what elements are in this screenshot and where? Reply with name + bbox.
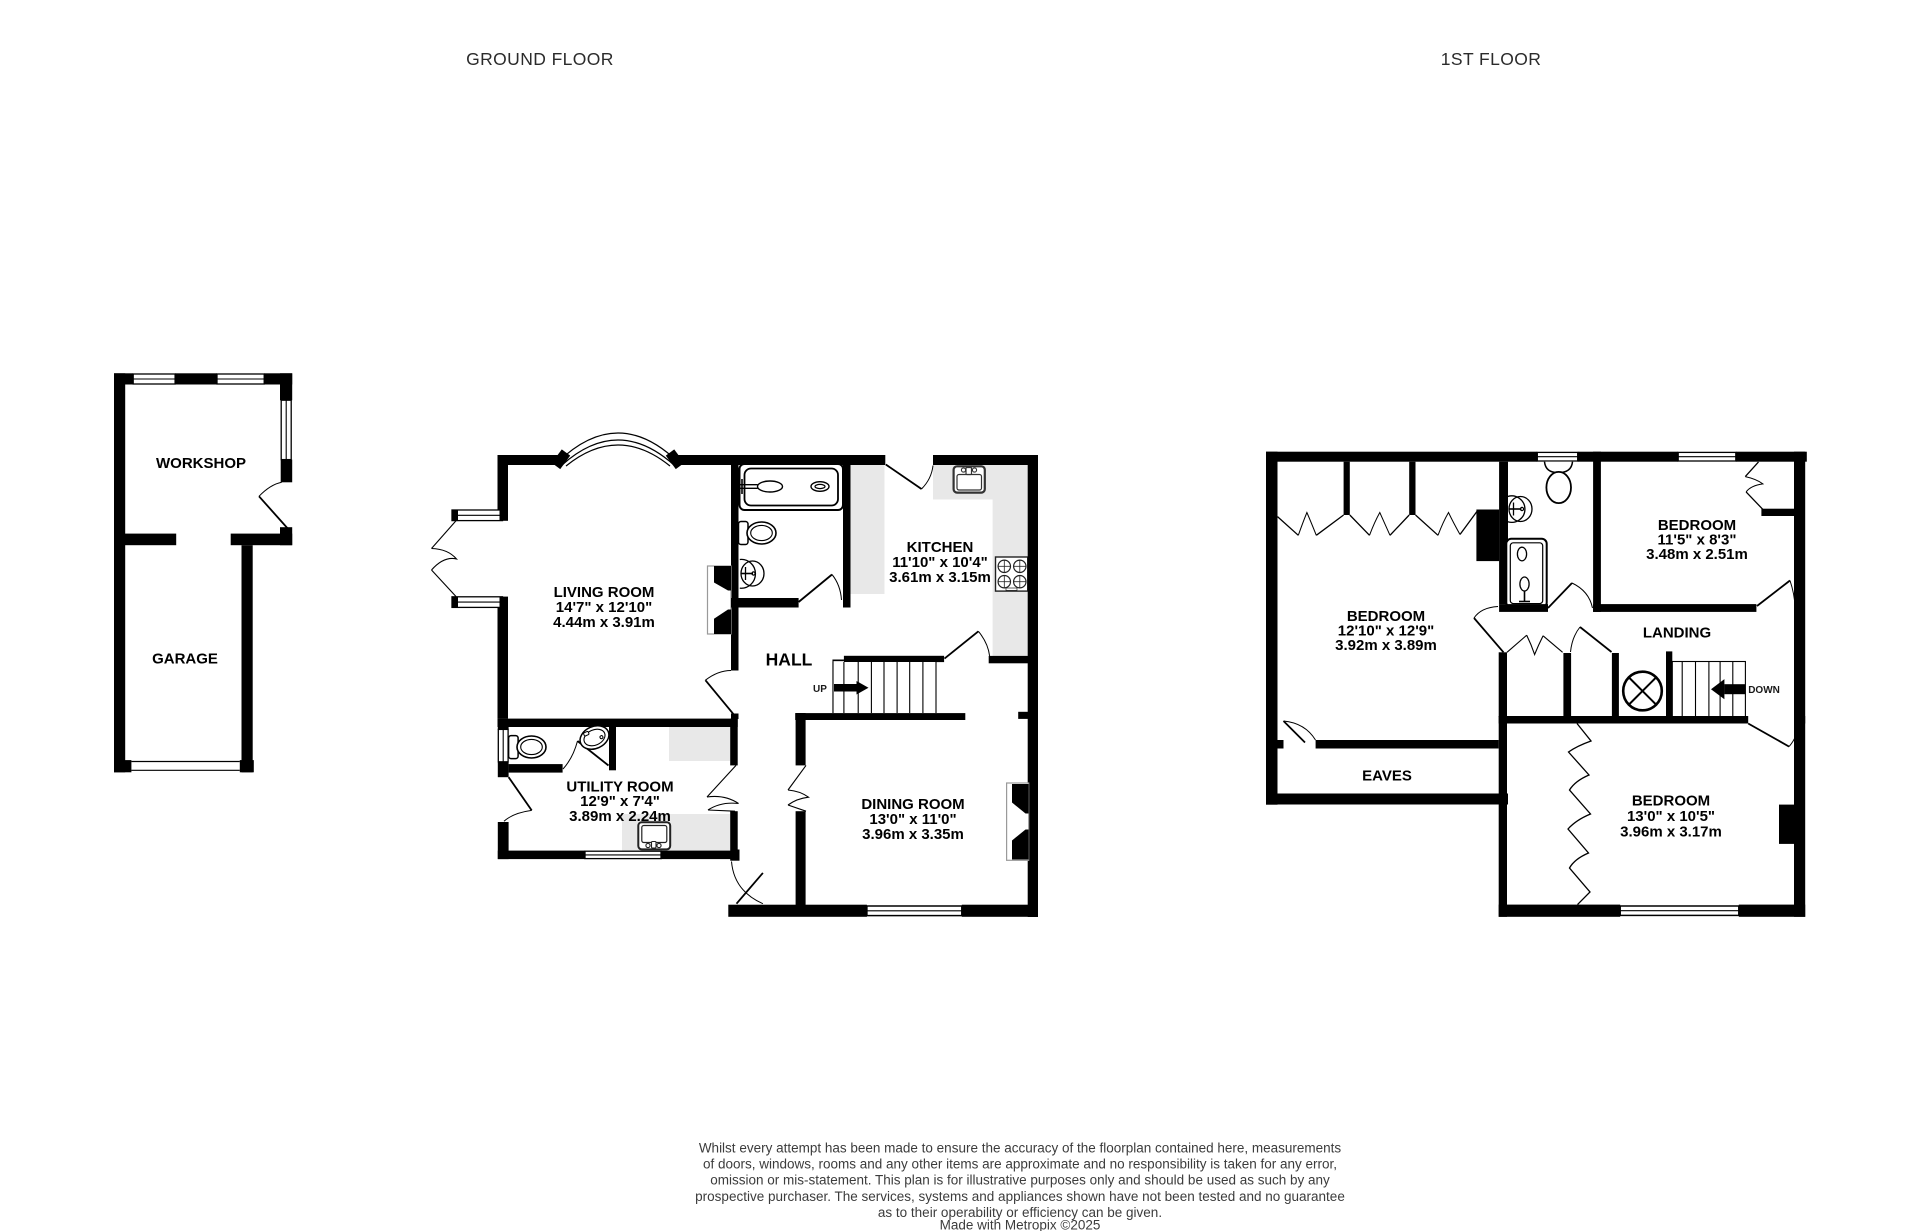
svg-text:Whilst every attempt has been: Whilst every attempt has been made to en…: [699, 1141, 1342, 1156]
svg-text:13'0" x 10'5": 13'0" x 10'5": [1627, 808, 1715, 825]
svg-text:LANDING: LANDING: [1643, 625, 1711, 642]
svg-text:1ST FLOOR: 1ST FLOOR: [1441, 49, 1542, 69]
svg-text:3.89m x 2.24m: 3.89m x 2.24m: [569, 808, 671, 825]
svg-text:WORKSHOP: WORKSHOP: [156, 455, 246, 472]
svg-text:BEDROOM: BEDROOM: [1632, 793, 1710, 810]
svg-text:3.48m x 2.51m: 3.48m x 2.51m: [1646, 546, 1748, 563]
svg-text:GROUND FLOOR: GROUND FLOOR: [466, 49, 614, 69]
svg-text:omission or mis-statement. Thi: omission or mis-statement. This plan is …: [710, 1173, 1330, 1188]
svg-text:UP: UP: [813, 684, 827, 695]
svg-text:4.44m x 3.91m: 4.44m x 3.91m: [553, 614, 655, 631]
svg-text:3.96m x 3.17m: 3.96m x 3.17m: [1620, 824, 1722, 841]
svg-text:3.92m x 3.89m: 3.92m x 3.89m: [1335, 637, 1437, 654]
svg-text:3.96m x 3.35m: 3.96m x 3.35m: [862, 826, 964, 843]
svg-text:GARAGE: GARAGE: [152, 651, 218, 668]
svg-text:of doors, windows, rooms and a: of doors, windows, rooms and any other i…: [703, 1157, 1337, 1172]
svg-text:Made with Metropix ©2025: Made with Metropix ©2025: [940, 1218, 1101, 1231]
svg-text:3.61m x 3.15m: 3.61m x 3.15m: [889, 569, 991, 586]
svg-text:DOWN: DOWN: [1748, 685, 1780, 696]
svg-text:prospective purchaser. The ser: prospective purchaser. The services, sys…: [695, 1189, 1345, 1204]
svg-text:HALL: HALL: [766, 650, 813, 670]
svg-text:EAVES: EAVES: [1362, 768, 1412, 785]
